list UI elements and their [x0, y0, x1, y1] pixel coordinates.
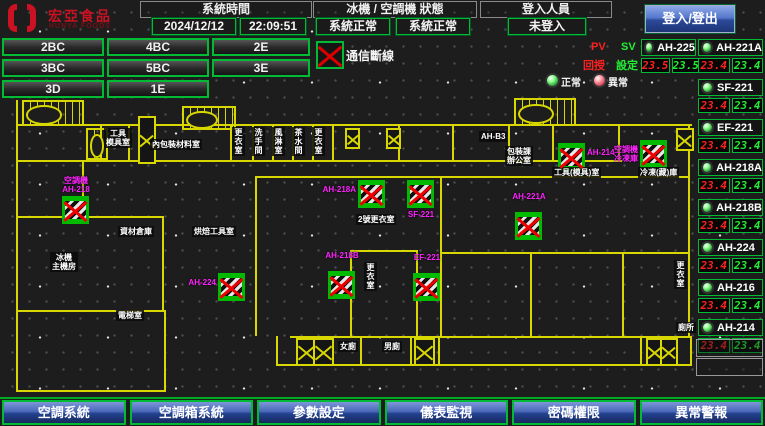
room-label: 電梯室: [116, 310, 144, 321]
wall-segment: [360, 336, 362, 364]
wall-segment: [164, 310, 166, 392]
wall-segment: [690, 336, 692, 366]
wall-segment: [452, 126, 454, 160]
room-label: 茶水間: [292, 127, 305, 156]
wall-segment: [552, 126, 554, 160]
wall-segment: [640, 336, 642, 364]
hmi-screen: 宏亞食品 HUNYA FOODS 系統時間 2024/12/12 22:09:5…: [0, 0, 765, 426]
wall-segment: [622, 252, 624, 336]
room-label: 女廁: [338, 341, 358, 352]
wall-segment: [162, 216, 164, 312]
shaft-x-icon: [313, 338, 334, 366]
menu-button-空調系統[interactable]: 空調系統: [2, 400, 126, 425]
menu-button-異常警報[interactable]: 異常警報: [640, 400, 764, 425]
room-label: 更衣室: [364, 262, 377, 291]
room-label: 資材倉庫: [118, 226, 154, 237]
device-label-AH-218B: AH-218B: [320, 251, 364, 260]
wall-segment: [16, 124, 692, 126]
menu-button-儀表監視[interactable]: 儀表監視: [385, 400, 509, 425]
device-SF-221[interactable]: [407, 180, 434, 208]
wall-segment: [410, 336, 412, 364]
room-label: 冰機 主機房: [50, 252, 78, 272]
wall-segment: [688, 124, 690, 338]
room-label: 更衣室: [312, 127, 325, 156]
room-label: AH-B3: [479, 131, 507, 142]
room-label: 風淋室: [272, 127, 285, 156]
wall-segment: [276, 336, 278, 366]
floor-plan: 空調機 AH-218AH-218ASF-221AH-214空調機 冷凍庫AH-2…: [0, 0, 765, 426]
device-label-AH-218: 空調機 AH-218: [54, 176, 98, 194]
room-label: 烘焙工具室: [192, 226, 236, 237]
device-EF-221[interactable]: [413, 273, 440, 301]
room-label: 冷凍(藏)庫: [638, 167, 679, 178]
room-label: 洗手間: [252, 127, 265, 156]
wall-segment: [16, 390, 166, 392]
menu-button-密碼權限[interactable]: 密碼權限: [512, 400, 636, 425]
shaft-x-icon: [676, 128, 694, 151]
device-AH-218A[interactable]: [358, 180, 385, 208]
device-AH-218B[interactable]: [328, 271, 355, 299]
room-label: 更衣室: [674, 260, 687, 289]
device-label-EF-221: EF-221: [405, 253, 449, 262]
wall-segment: [438, 336, 440, 364]
wall-segment: [530, 252, 532, 336]
device-label-SF-221: SF-221: [399, 210, 443, 219]
shaft-x-icon: [386, 128, 401, 149]
device-label-AH-224: AH-224: [182, 278, 216, 287]
shaft-x-icon: [345, 128, 360, 149]
device-冷凍庫空調機[interactable]: [640, 140, 667, 168]
room-label: 內包裝材料室: [150, 139, 202, 150]
device-AH-224[interactable]: [218, 273, 245, 301]
room-label: 工具 模具室: [104, 128, 132, 148]
wall-segment: [332, 126, 334, 160]
wall-segment: [255, 176, 257, 336]
bottom-menu: 空調系統空調箱系統參數設定儀表監視密碼權限異常警報: [0, 399, 765, 426]
device-label-冷凍庫空調機: 空調機 冷凍庫: [604, 145, 638, 163]
device-label-AH-221A: AH-221A: [507, 192, 551, 201]
shaft-x-icon: [414, 338, 435, 366]
stairs-icon: [182, 106, 236, 130]
device-AH-221A[interactable]: [515, 212, 542, 240]
stairs-icon: [514, 98, 576, 126]
wall-segment: [255, 176, 690, 178]
device-label-AH-218A: AH-218A: [322, 185, 356, 194]
menu-button-空調箱系統[interactable]: 空調箱系統: [130, 400, 254, 425]
wall-segment: [290, 336, 690, 338]
wall-segment: [440, 252, 690, 254]
room-label: 工具(模具)室: [552, 167, 601, 178]
room-label: 廁所: [676, 322, 696, 333]
wall-segment: [276, 364, 690, 366]
room-label: 更衣室: [232, 127, 245, 156]
stairs-icon: [22, 100, 84, 126]
wall-segment: [16, 100, 18, 392]
room-label: 包裝課 辦公室: [505, 146, 533, 166]
room-label: 男廁: [382, 341, 402, 352]
wall-segment: [16, 216, 164, 218]
device-AH-218[interactable]: [62, 196, 89, 224]
room-label: 2號更衣室: [356, 214, 396, 225]
menu-button-參數設定[interactable]: 參數設定: [257, 400, 381, 425]
shaft-x-icon: [660, 338, 678, 366]
